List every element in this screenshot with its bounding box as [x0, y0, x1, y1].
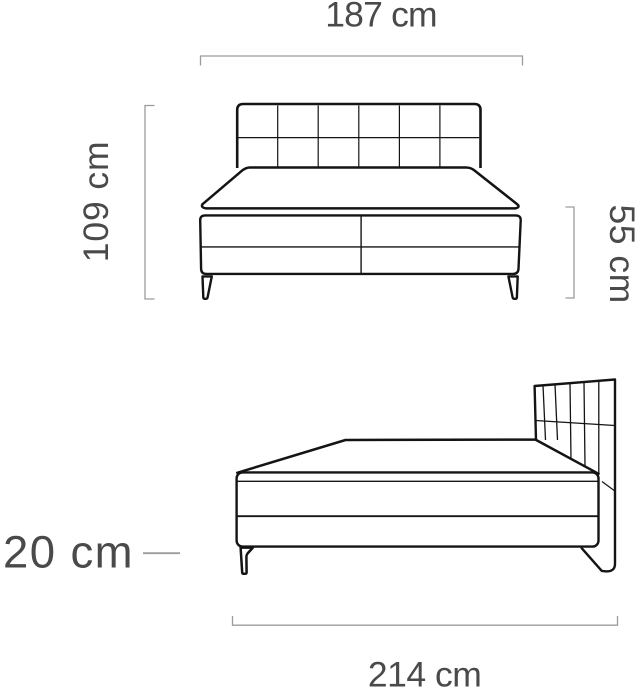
svg-text:187 cm: 187 cm [325, 0, 437, 35]
svg-text:20 cm: 20 cm [3, 527, 134, 578]
svg-text:109 cm: 109 cm [76, 140, 116, 262]
svg-text:214 cm: 214 cm [368, 655, 481, 692]
svg-text:55 cm: 55 cm [602, 205, 640, 304]
